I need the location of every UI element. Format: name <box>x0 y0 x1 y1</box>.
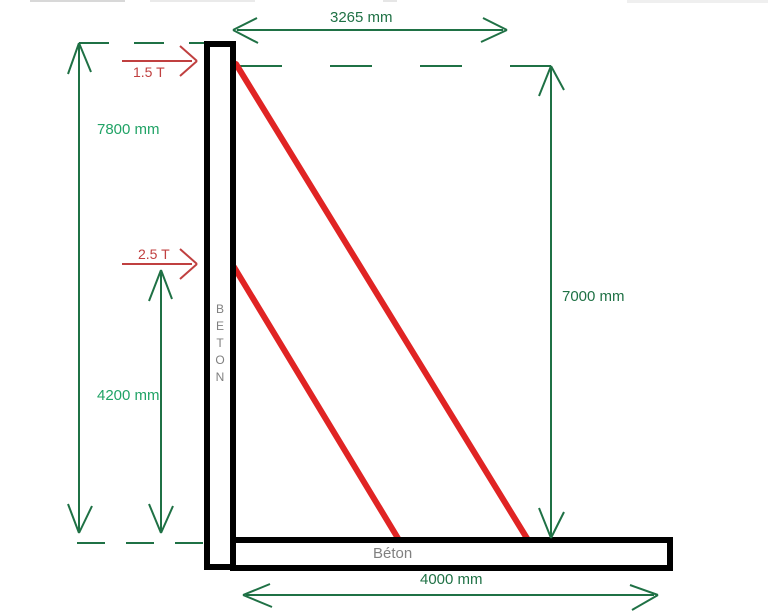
dim-label-right-height: 7000 mm <box>562 289 625 305</box>
wall-material-label: BETON <box>212 302 228 387</box>
tie-rods <box>234 64 528 540</box>
artifact-fragment <box>150 0 255 2</box>
artifact-fragment <box>30 0 125 2</box>
artifact-fragment <box>627 0 768 3</box>
dimension-lines <box>68 18 658 610</box>
diagram-canvas: 3265 mm 7800 mm 4200 mm 7000 mm 4000 mm … <box>0 0 768 614</box>
reference-lines <box>77 43 551 543</box>
top-edge-artifacts <box>30 0 768 3</box>
base-slab-outline <box>233 540 670 568</box>
dim-label-base-width: 4000 mm <box>420 572 483 588</box>
load-label-upper: 1.5 T <box>133 64 165 80</box>
diagram-drawing <box>0 0 768 614</box>
tie-rod-upper <box>236 64 528 540</box>
artifact-fragment <box>383 0 397 2</box>
arrowhead-base-width-right <box>630 585 658 610</box>
tie-rod-lower <box>234 267 399 540</box>
load-label-lower: 2.5 T <box>138 246 170 262</box>
slab-material-label: Béton <box>373 546 412 562</box>
load-arrows <box>122 46 197 279</box>
dim-label-lower-left-height: 4200 mm <box>97 388 160 404</box>
dim-label-top-width: 3265 mm <box>330 10 393 26</box>
dim-label-wall-height: 7800 mm <box>97 122 160 138</box>
